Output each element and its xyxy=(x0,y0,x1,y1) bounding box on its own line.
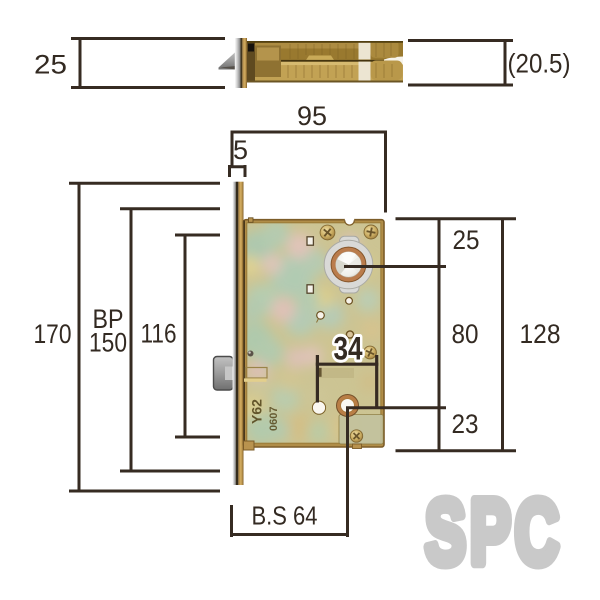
svg-text:116: 116 xyxy=(141,319,177,349)
svg-text:25: 25 xyxy=(34,50,67,80)
svg-text:SPC: SPC xyxy=(425,480,563,583)
svg-text:128: 128 xyxy=(520,319,561,349)
svg-text:(20.5): (20.5) xyxy=(508,49,571,79)
svg-text:150: 150 xyxy=(89,328,127,358)
svg-text:25: 25 xyxy=(453,225,480,255)
svg-text:95: 95 xyxy=(297,101,327,131)
svg-text:0607: 0607 xyxy=(268,407,280,431)
svg-text:34: 34 xyxy=(334,331,363,367)
svg-text:B.S 64: B.S 64 xyxy=(252,501,318,531)
svg-text:80: 80 xyxy=(452,319,479,349)
svg-text:Y62: Y62 xyxy=(249,399,265,424)
svg-text:170: 170 xyxy=(34,319,72,349)
svg-text:5: 5 xyxy=(233,135,248,165)
svg-text:23: 23 xyxy=(452,409,479,439)
